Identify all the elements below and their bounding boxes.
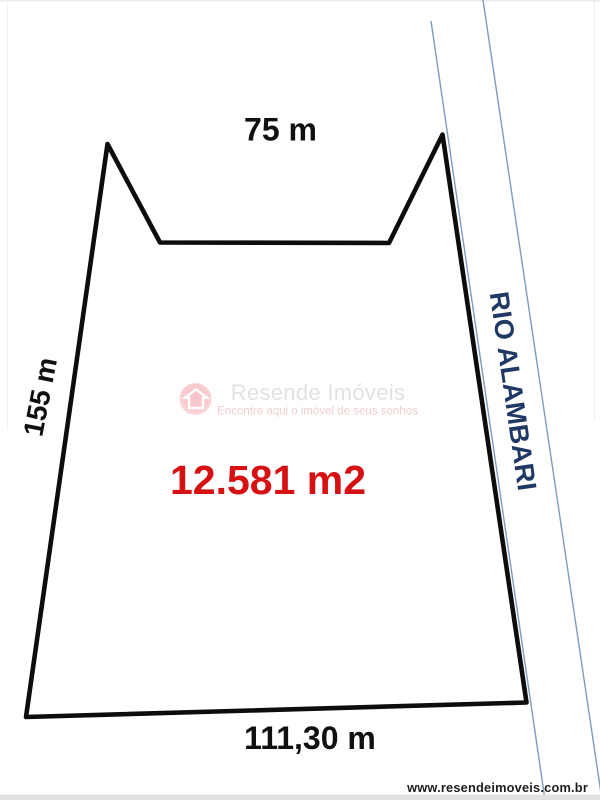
svg-text:111,30 m: 111,30 m [244,720,376,756]
svg-text:75 m: 75 m [244,112,317,148]
svg-text:Resende Imóveis: Resende Imóveis [231,380,405,405]
svg-text:www.resendeimoveis.com.br: www.resendeimoveis.com.br [406,780,588,795]
svg-text:12.581 m2: 12.581 m2 [170,457,366,503]
svg-text:Encontre aqui o imóvel de seus: Encontre aqui o imóvel de seus sonhos [217,406,418,418]
